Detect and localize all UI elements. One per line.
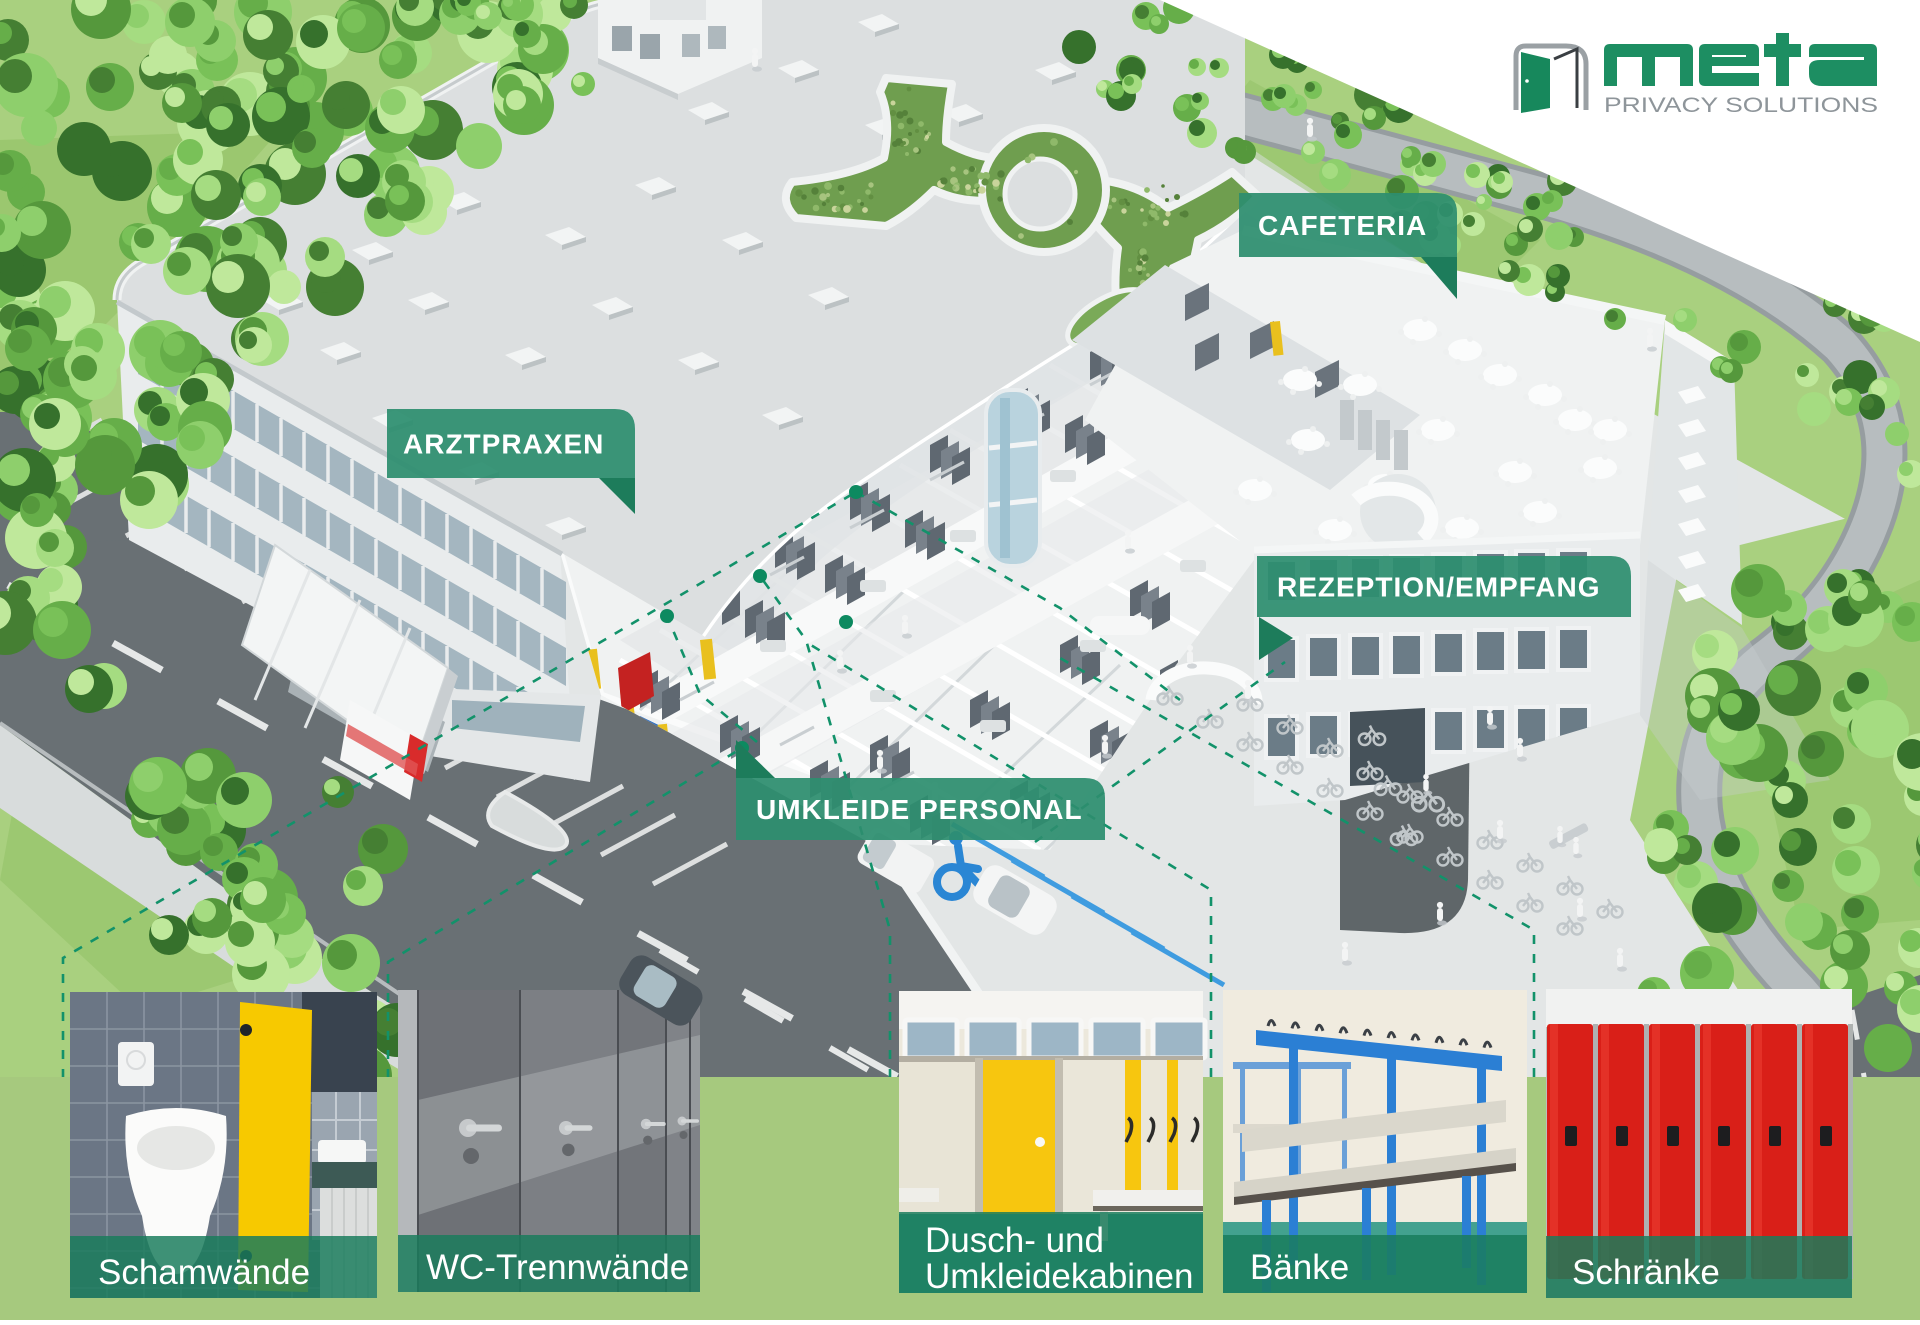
- svg-text:REZEPTION/EMPFANG: REZEPTION/EMPFANG: [1277, 572, 1600, 603]
- svg-text:UMKLEIDE PERSONAL: UMKLEIDE PERSONAL: [756, 794, 1083, 825]
- svg-text:Bänke: Bänke: [1250, 1248, 1349, 1287]
- svg-text:Dusch- und: Dusch- und: [925, 1221, 1104, 1260]
- svg-text:Schamwände: Schamwände: [98, 1253, 310, 1292]
- svg-text:ARZTPRAXEN: ARZTPRAXEN: [403, 429, 604, 460]
- svg-text:Umkleidekabinen: Umkleidekabinen: [925, 1257, 1193, 1296]
- svg-text:WC-Trennwände: WC-Trennwände: [426, 1248, 689, 1287]
- svg-text:CAFETERIA: CAFETERIA: [1258, 210, 1427, 241]
- svg-text:PRIVACY SOLUTIONS: PRIVACY SOLUTIONS: [1604, 94, 1878, 117]
- svg-text:Schränke: Schränke: [1572, 1253, 1720, 1292]
